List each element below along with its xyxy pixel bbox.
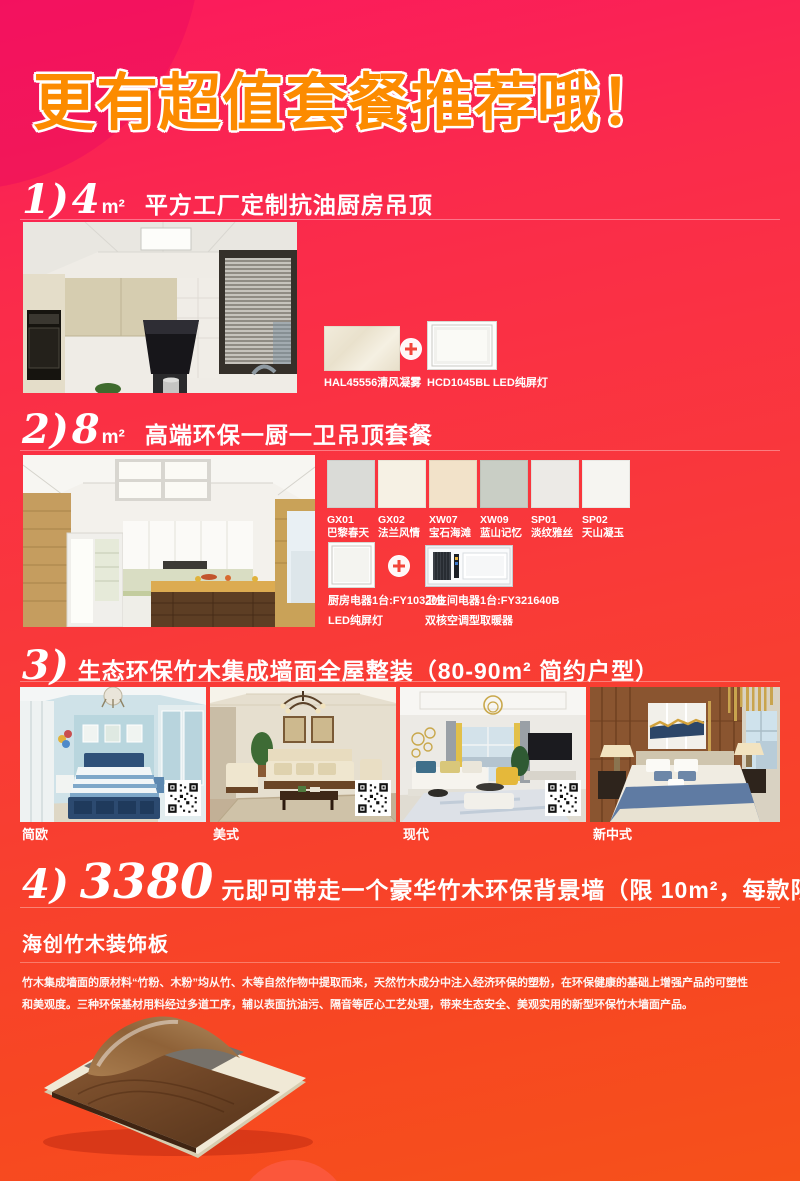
- product-label: HCD1045BL LED纯屏灯: [427, 374, 548, 390]
- kitchen-photo-small: [23, 222, 297, 393]
- room-photo-jianou: [20, 687, 206, 822]
- swatch-chip: [582, 460, 630, 508]
- appliance-label: 卫生间电器1台:FY321640B 双核空调型取暖器: [425, 592, 560, 628]
- room-photo-xinzhongshi: [590, 687, 780, 822]
- section-divider: [20, 450, 780, 451]
- product-label: HAL45556清风凝雾: [324, 374, 421, 390]
- section2-size: 8: [72, 406, 100, 453]
- swatch-chip: [480, 460, 528, 508]
- style-label-xinzhongshi: 新中式: [593, 824, 632, 843]
- qr-code: [545, 780, 581, 816]
- swatch-code: SP02: [582, 514, 632, 527]
- appliance-label-line1: 卫生间电器1台:FY321640B: [425, 592, 560, 608]
- bathroom-heater-product: [425, 545, 513, 587]
- section4-heading: 4) 3380 元即可带走一个豪华竹木环保背景墙（限 10m²，每款限供 10 …: [22, 854, 800, 910]
- swatch-name: 法兰风情: [378, 527, 428, 540]
- section4-price: 3380: [80, 854, 214, 910]
- swatch-code: XW09: [480, 514, 530, 527]
- qr-code: [165, 780, 201, 816]
- appliance-label-line2: 双核空调型取暖器: [425, 612, 560, 628]
- kitchen-photo-large: [23, 455, 315, 627]
- swatch-name: 蓝山记忆: [480, 527, 530, 540]
- panel-swatch-hal45556: [324, 326, 400, 371]
- swatch-chip: [327, 460, 375, 508]
- swatch-sp01: SP01 淡纹雅丝: [531, 460, 581, 540]
- footer-heading: 海创竹木装饰板: [22, 928, 169, 957]
- swatch-code: GX01: [327, 514, 377, 527]
- swatch-name: 巴黎春天: [327, 527, 377, 540]
- led-panel-product: [427, 321, 497, 370]
- section-divider: [20, 219, 780, 220]
- swatch-chip: [378, 460, 426, 508]
- swatch-xw07: XW07 宝石海滩: [429, 460, 479, 540]
- style-label-jianou: 简欧: [22, 824, 48, 843]
- swatch-name: 天山凝玉: [582, 527, 632, 540]
- section1-number: 1): [22, 176, 69, 223]
- section-divider: [20, 907, 780, 908]
- section2-number: 2): [22, 406, 69, 453]
- footer-divider: [20, 962, 780, 963]
- swatch-code: GX02: [378, 514, 428, 527]
- qr-code: [355, 780, 391, 816]
- bottom-circle-decoration: [237, 1160, 349, 1181]
- plus-icon: [388, 555, 410, 577]
- wood-panel-image: [28, 1008, 333, 1158]
- style-label-meishi: 美式: [213, 824, 239, 843]
- section4-title: 元即可带走一个豪华竹木环保背景墙（限 10m²，每款限供 10 套，抢完即止）: [221, 871, 800, 905]
- kitchen-led-panel: [328, 542, 375, 588]
- promo-page: 更有超值套餐推荐哦！ 1) 4 m² 平方工厂定制抗油厨房吊顶: [0, 0, 800, 1181]
- section2-unit: m²: [102, 427, 125, 449]
- section1-title: 平方工厂定制抗油厨房吊顶: [145, 186, 433, 220]
- swatch-gx02: GX02 法兰风情: [378, 460, 428, 540]
- swatch-code: SP01: [531, 514, 581, 527]
- swatch-chip: [429, 460, 477, 508]
- section-divider: [20, 681, 780, 682]
- page-title: 更有超值套餐推荐哦！: [33, 52, 663, 142]
- section1-size: 4: [72, 176, 100, 223]
- swatch-code: XW07: [429, 514, 479, 527]
- plus-icon: [400, 338, 422, 360]
- section2-heading: 2) 8 m² 高端环保一厨一卫吊顶套餐: [22, 406, 433, 453]
- room-photo-xiandai: [400, 687, 586, 822]
- style-label-xiandai: 现代: [403, 824, 429, 843]
- room-photo-meishi: [210, 687, 396, 822]
- section4-number: 4): [22, 861, 69, 908]
- swatch-name: 宝石海滩: [429, 527, 479, 540]
- section1-unit: m²: [102, 197, 125, 219]
- swatch-xw09: XW09 蓝山记忆: [480, 460, 530, 540]
- swatch-chip: [531, 460, 579, 508]
- footer-paragraph-line1: 竹木集成墙面的原材料“竹粉、木粉”均从竹、木等自然作物中提取而来，天然竹木成分中…: [22, 972, 748, 994]
- swatch-name: 淡纹雅丝: [531, 527, 581, 540]
- swatch-sp02: SP02 天山凝玉: [582, 460, 632, 540]
- section1-heading: 1) 4 m² 平方工厂定制抗油厨房吊顶: [22, 176, 433, 223]
- swatch-gx01: GX01 巴黎春天: [327, 460, 377, 540]
- section2-title: 高端环保一厨一卫吊顶套餐: [145, 416, 433, 450]
